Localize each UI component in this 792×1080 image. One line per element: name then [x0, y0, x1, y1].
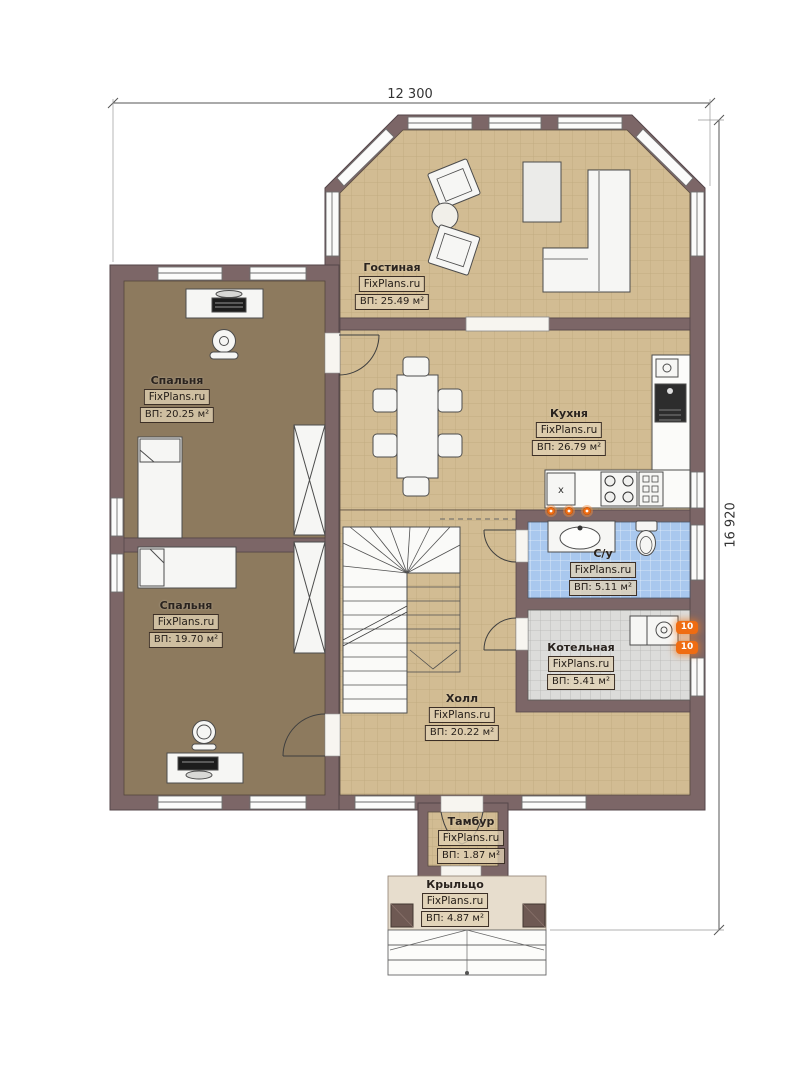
watermark: FixPlans.ru [429, 707, 496, 723]
room-label-bathroom: С/у FixPlans.ru ВП: 5.11 м² [569, 548, 637, 596]
pillow [140, 439, 180, 462]
watermark: FixPlans.ru [548, 656, 615, 672]
watermark: FixPlans.ru [422, 893, 489, 909]
room-name: Котельная [547, 642, 615, 654]
room-area: ВП: 25.49 м² [355, 294, 429, 310]
room-name: С/у [569, 548, 637, 560]
dining-table [397, 375, 438, 478]
room-label-porch: Крыльцо FixPlans.ru ВП: 4.87 м² [421, 879, 489, 927]
room-area: ВП: 5.41 м² [547, 674, 615, 690]
room-name: Спальня [140, 375, 214, 387]
room-name: Крыльцо [421, 879, 489, 891]
chair [403, 477, 429, 496]
radiator-badge: 10 [676, 621, 698, 634]
chair [403, 357, 429, 376]
room-name: Спальня [149, 600, 223, 612]
watermark: FixPlans.ru [536, 422, 603, 438]
room-name: Гостиная [355, 262, 429, 274]
room-name: Кухня [532, 408, 606, 420]
room-name: Тамбур [437, 816, 505, 828]
fridge-symbol: x [558, 485, 564, 496]
radiator-badge: 10 [676, 641, 698, 654]
boiler-unit [630, 616, 678, 645]
toilet [637, 531, 656, 556]
room-area: ВП: 1.87 м² [437, 848, 505, 864]
floor-plan-drawing: x [0, 0, 792, 1080]
coffee-machine [656, 359, 678, 377]
room-label-hall: Холл FixPlans.ru ВП: 20.22 м² [425, 693, 499, 741]
porch-steps [388, 930, 546, 975]
chair [373, 389, 397, 412]
chair [438, 389, 462, 412]
room-label-kitchen: Кухня FixPlans.ru ВП: 26.79 м² [532, 408, 606, 456]
room-label-boiler-room: Котельная FixPlans.ru ВП: 5.41 м² [547, 642, 615, 690]
room-area: ВП: 20.25 м² [140, 407, 214, 423]
dimension-height-label: 16 920 [724, 502, 739, 548]
computer [212, 298, 246, 312]
room-area: ВП: 19.70 м² [149, 632, 223, 648]
room-label-bedroom-2: Спальня FixPlans.ru ВП: 19.70 м² [149, 600, 223, 648]
watermark: FixPlans.ru [144, 389, 211, 405]
toilet-tank [636, 521, 657, 531]
room-area: ВП: 4.87 м² [421, 911, 489, 927]
computer [178, 757, 218, 770]
watermark: FixPlans.ru [570, 562, 637, 578]
watermark: FixPlans.ru [153, 614, 220, 630]
room-area: ВП: 5.11 м² [569, 580, 637, 596]
watermark: FixPlans.ru [438, 830, 505, 846]
pillow [140, 549, 164, 586]
sprinkler-markers [545, 505, 593, 517]
chair [438, 434, 462, 457]
room-area: ВП: 20.22 м² [425, 725, 499, 741]
room-label-living-room: Гостиная FixPlans.ru ВП: 25.49 м² [355, 262, 429, 310]
room-label-bedroom-1: Спальня FixPlans.ru ВП: 20.25 м² [140, 375, 214, 423]
room-name: Холл [425, 693, 499, 705]
coffee-table [523, 162, 561, 222]
chair [373, 434, 397, 457]
dimension-width-label: 12 300 [387, 87, 433, 102]
watermark: FixPlans.ru [359, 276, 426, 292]
room-area: ВП: 26.79 м² [532, 440, 606, 456]
room-label-vestibule: Тамбур FixPlans.ru ВП: 1.87 м² [437, 816, 505, 864]
office-chair [193, 721, 216, 744]
oven [639, 472, 663, 506]
round-table [432, 203, 458, 229]
office-chair [213, 330, 236, 353]
floor-plan-canvas: x 12 300 16 920 Гостиная FixPlans.ru ВП:… [0, 0, 792, 1080]
living-kitchen-opening [466, 317, 549, 331]
